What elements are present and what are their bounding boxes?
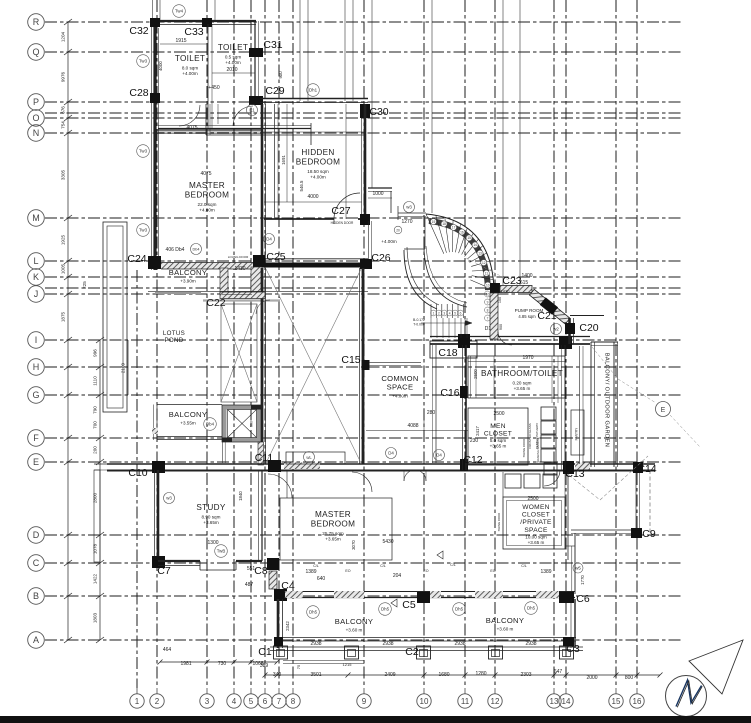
svg-text:20: 20 — [396, 229, 400, 233]
svg-text:K: K — [33, 272, 39, 282]
svg-text:4088: 4088 — [407, 423, 418, 429]
svg-text:13: 13 — [550, 697, 559, 706]
svg-text:C: C — [33, 558, 40, 568]
svg-text:/PRIVATE: /PRIVATE — [520, 519, 552, 526]
svg-text:M: M — [32, 213, 40, 223]
svg-text:PUMP ROOM: PUMP ROOM — [515, 308, 544, 313]
svg-text:2800: 2800 — [93, 492, 98, 503]
svg-text:Dh1: Dh1 — [309, 88, 318, 93]
svg-text:Tw3: Tw3 — [139, 149, 148, 154]
svg-text:+3.55m: +3.55m — [180, 421, 196, 426]
svg-text:C15: C15 — [341, 354, 360, 366]
svg-text:B: B — [33, 591, 39, 601]
svg-text:C13: C13 — [565, 468, 584, 480]
svg-text:EO: EO — [423, 569, 428, 573]
svg-text:1: 1 — [135, 697, 140, 706]
svg-text:PANTRY: PANTRY — [575, 427, 579, 441]
svg-text:1400: 1400 — [521, 273, 532, 279]
svg-text:HIDDEN: HIDDEN — [301, 148, 334, 157]
svg-text:1389: 1389 — [540, 569, 551, 575]
svg-text:1005: 1005 — [61, 263, 66, 274]
svg-text:1270: 1270 — [401, 219, 412, 225]
svg-text:N: N — [33, 128, 40, 138]
svg-text:1691: 1691 — [281, 155, 286, 165]
svg-text:17: 17 — [452, 226, 456, 230]
svg-text:C28: C28 — [129, 87, 148, 99]
svg-text:C9: C9 — [642, 528, 656, 540]
svg-text:C5: C5 — [402, 599, 416, 611]
svg-text:640: 640 — [317, 576, 326, 582]
svg-text:0.20 sqm: 0.20 sqm — [513, 380, 532, 385]
svg-text:+4.00m: +4.00m — [199, 207, 215, 212]
svg-text:T-0.000: T-0.000 — [413, 323, 425, 327]
svg-text:4000: 4000 — [307, 194, 318, 200]
svg-text:7: 7 — [277, 697, 282, 706]
svg-text:CLOSET: CLOSET — [522, 512, 550, 519]
svg-text:+3.65m: +3.65m — [325, 536, 341, 541]
svg-text:MEN: MEN — [490, 423, 506, 430]
svg-text:+3.60 m: +3.60 m — [346, 628, 363, 633]
svg-text:BALCONY: BALCONY — [335, 617, 373, 626]
svg-text:BALCONY: BALCONY — [169, 410, 207, 419]
svg-text:WOMEN: WOMEN — [522, 504, 550, 511]
svg-text:10: 10 — [420, 697, 429, 706]
svg-text:BEDROOM: BEDROOM — [185, 190, 229, 199]
svg-text:1280: 1280 — [475, 671, 486, 677]
svg-text:13: 13 — [478, 251, 482, 255]
svg-text:1000: 1000 — [372, 191, 383, 197]
svg-text:8: 8 — [291, 697, 296, 706]
svg-text:E: E — [33, 457, 39, 467]
svg-text:406 Db4: 406 Db4 — [166, 247, 185, 253]
svg-text:BEDROOM: BEDROOM — [296, 157, 340, 166]
svg-text:10.00 sqm: 10.00 sqm — [525, 534, 547, 539]
svg-text:BATHROOM/TOILET: BATHROOM/TOILET — [481, 369, 563, 378]
svg-text:STUDY: STUDY — [196, 503, 225, 512]
svg-text:6: 6 — [460, 311, 462, 315]
svg-text:C32: C32 — [129, 25, 148, 37]
svg-text:B-0.172: B-0.172 — [413, 318, 425, 322]
svg-text:C14: C14 — [637, 463, 656, 475]
svg-text:9976: 9976 — [61, 71, 66, 82]
svg-text:C25: C25 — [266, 251, 285, 263]
svg-text:LOUNG DOOR: LOUNG DOOR — [228, 255, 249, 259]
svg-text:D4: D4 — [436, 453, 442, 458]
svg-text:C31: C31 — [263, 39, 282, 51]
svg-text:615: 615 — [520, 280, 529, 286]
svg-text:SWING DOOR: SWING DOOR — [522, 439, 526, 458]
svg-text:Tw3: Tw3 — [139, 59, 148, 64]
svg-text:2500: 2500 — [493, 411, 504, 417]
svg-text:C/L: C/L — [521, 564, 527, 568]
svg-text:+3.65 m: +3.65 m — [514, 386, 531, 391]
svg-text:900: 900 — [250, 421, 254, 427]
svg-text:C33: C33 — [184, 26, 203, 38]
svg-text:E1: E1 — [249, 108, 255, 113]
svg-text:SWING DOOR: SWING DOOR — [497, 513, 501, 532]
svg-text:BALCONY/ OUTDOOR GARDEN: BALCONY/ OUTDOOR GARDEN — [604, 353, 610, 448]
svg-text:C16: C16 — [440, 387, 459, 399]
svg-text:5: 5 — [249, 697, 254, 706]
svg-text:5: 5 — [454, 311, 456, 315]
svg-text:EO: EO — [345, 569, 350, 573]
svg-text:18: 18 — [442, 222, 446, 226]
svg-text:I: I — [35, 335, 38, 345]
svg-text:H: H — [33, 362, 40, 372]
svg-text:1204: 1204 — [61, 31, 66, 42]
svg-text:C22: C22 — [206, 297, 225, 309]
svg-text:Db4: Db4 — [206, 422, 215, 427]
svg-text:790: 790 — [93, 406, 98, 414]
svg-text:C/L: C/L — [313, 564, 319, 568]
svg-text:BEDROOM: BEDROOM — [311, 519, 355, 528]
svg-text:4075: 4075 — [200, 171, 211, 177]
svg-text:551: 551 — [247, 566, 256, 572]
svg-text:3070: 3070 — [351, 540, 356, 550]
svg-text:200: 200 — [93, 446, 98, 454]
svg-text:+3.90m: +3.90m — [180, 279, 196, 284]
svg-text:TOILET: TOILET — [218, 43, 248, 52]
svg-text:1875: 1875 — [61, 311, 66, 322]
svg-text:15: 15 — [612, 697, 621, 706]
svg-text:4.85 sqm: 4.85 sqm — [518, 314, 536, 319]
svg-text:R: R — [33, 17, 40, 27]
svg-text:1970: 1970 — [522, 355, 533, 361]
svg-text:1422: 1422 — [93, 573, 98, 584]
svg-text:1389: 1389 — [305, 569, 316, 575]
svg-text:464: 464 — [163, 647, 172, 653]
svg-text:D: D — [33, 530, 40, 540]
svg-text:w5: w5 — [575, 566, 581, 571]
svg-text:4: 4 — [449, 311, 451, 315]
svg-text:Dh5: Dh5 — [381, 607, 390, 612]
svg-text:+4.00m: +4.00m — [310, 174, 326, 179]
svg-text:+4.00m: +4.00m — [392, 393, 408, 398]
svg-text:546.5: 546.5 — [299, 180, 304, 192]
svg-text:2342: 2342 — [285, 621, 290, 631]
svg-text:C26: C26 — [371, 252, 390, 264]
svg-text:2417: 2417 — [475, 426, 480, 436]
svg-text:C10: C10 — [128, 467, 147, 479]
svg-text:+3.65m: +3.65m — [203, 520, 219, 525]
svg-text:J: J — [34, 289, 39, 299]
svg-text:14: 14 — [562, 697, 571, 706]
svg-text:19: 19 — [432, 220, 436, 224]
svg-text:Tw3: Tw3 — [139, 228, 148, 233]
svg-text:18.50 sqm: 18.50 sqm — [307, 169, 329, 174]
svg-text:1215: 1215 — [343, 662, 353, 667]
svg-text:1803: 1803 — [93, 612, 98, 623]
svg-text:8: 8 — [487, 308, 489, 312]
svg-text:C30: C30 — [369, 106, 388, 118]
svg-text:3: 3 — [205, 697, 210, 706]
svg-text:11: 11 — [461, 697, 470, 706]
svg-text:C1: C1 — [258, 646, 272, 658]
svg-text:F: F — [33, 433, 39, 443]
svg-text:Dh5: Dh5 — [455, 607, 464, 612]
svg-text:BALCONY: BALCONY — [486, 616, 524, 625]
svg-text:E: E — [661, 407, 666, 414]
svg-text:2938: 2938 — [454, 641, 465, 647]
svg-text:2938: 2938 — [310, 641, 321, 647]
svg-text:1430: 1430 — [234, 266, 245, 272]
svg-text:C/L: C/L — [380, 564, 386, 568]
svg-text:700: 700 — [93, 421, 98, 429]
svg-text:BALCONY: BALCONY — [169, 268, 207, 277]
svg-text:+3.60 m: +3.60 m — [497, 627, 514, 632]
svg-text:15: 15 — [467, 236, 471, 240]
svg-text:4000: 4000 — [158, 61, 163, 71]
svg-text:Q: Q — [32, 47, 39, 57]
svg-text:800: 800 — [625, 675, 634, 681]
svg-text:204: 204 — [393, 573, 402, 579]
svg-text:6: 6 — [263, 697, 268, 706]
svg-text:676: 676 — [61, 106, 66, 114]
svg-text:P: P — [33, 97, 39, 107]
svg-text:C8: C8 — [254, 565, 268, 577]
svg-text:1: 1 — [433, 311, 435, 315]
svg-text:280: 280 — [427, 410, 436, 416]
svg-text:Tw4: Tw4 — [175, 9, 184, 14]
svg-text:2938: 2938 — [525, 641, 536, 647]
svg-text:w3: w3 — [166, 496, 172, 501]
svg-text:C/L: C/L — [450, 563, 456, 567]
svg-text:L: L — [33, 256, 38, 266]
svg-text:C7: C7 — [157, 565, 171, 577]
svg-text:CLOSET: CLOSET — [484, 431, 512, 438]
svg-text:EO: EO — [490, 569, 495, 573]
svg-text:Dh5: Dh5 — [309, 610, 318, 615]
svg-text:TOILET: TOILET — [175, 54, 205, 63]
svg-text:+450: +450 — [208, 85, 219, 91]
svg-text:2000: 2000 — [586, 675, 597, 681]
svg-text:1078: 1078 — [93, 543, 98, 554]
svg-text:2500: 2500 — [473, 369, 478, 379]
svg-text:MASTER: MASTER — [315, 510, 351, 519]
svg-text:4075: 4075 — [186, 125, 197, 131]
svg-text:5430: 5430 — [382, 539, 393, 545]
svg-text:w2: w2 — [553, 327, 559, 332]
svg-text:+3.65 m: +3.65 m — [490, 444, 507, 449]
svg-text:12: 12 — [482, 261, 486, 265]
svg-text:LOTUS: LOTUS — [163, 330, 185, 337]
svg-text:O: O — [32, 113, 39, 123]
svg-text:C24: C24 — [127, 253, 146, 265]
svg-text:900: 900 — [278, 71, 283, 79]
svg-text:754: 754 — [61, 121, 66, 129]
svg-text:1915: 1915 — [175, 38, 186, 44]
svg-text:14: 14 — [473, 243, 477, 247]
svg-text:2: 2 — [438, 311, 440, 315]
svg-text:2: 2 — [155, 697, 160, 706]
svg-text:wL: wL — [306, 455, 312, 460]
svg-text:996: 996 — [93, 349, 98, 357]
svg-text:225: 225 — [82, 281, 87, 289]
svg-text:1840: 1840 — [238, 491, 243, 501]
svg-text:C12: C12 — [463, 454, 482, 466]
svg-text:2010: 2010 — [226, 67, 237, 73]
svg-text:1300: 1300 — [207, 540, 218, 546]
svg-text:100: 100 — [498, 297, 502, 303]
svg-text:16: 16 — [460, 230, 464, 234]
svg-text:1430: 1430 — [501, 289, 511, 294]
svg-text:+3.65 m: +3.65 m — [528, 540, 545, 545]
svg-text:C11: C11 — [255, 452, 274, 464]
svg-text:D4: D4 — [266, 237, 272, 242]
svg-text:FROSTED GLASS: FROSTED GLASS — [528, 423, 532, 448]
svg-text:7: 7 — [487, 316, 489, 320]
svg-text:8.90 sqm: 8.90 sqm — [202, 514, 221, 519]
svg-text:5.0 sqm: 5.0 sqm — [490, 438, 507, 443]
svg-text:D4: D4 — [388, 451, 394, 456]
svg-text:Dh5: Dh5 — [527, 606, 536, 611]
svg-text:22.0 sqm: 22.0 sqm — [198, 202, 217, 207]
svg-text:4: 4 — [232, 697, 237, 706]
svg-text:C20: C20 — [579, 322, 598, 334]
svg-text:HIDDEN DOOR: HIDDEN DOOR — [331, 221, 354, 225]
svg-text:C3: C3 — [566, 643, 580, 655]
svg-text:C29: C29 — [265, 85, 284, 97]
svg-text:0.5 sqm: 0.5 sqm — [225, 54, 242, 59]
svg-text:POND: POND — [164, 337, 183, 344]
svg-text:+4.00m: +4.00m — [182, 71, 198, 76]
svg-text:SPACE: SPACE — [524, 527, 548, 534]
svg-text:+4.00m: +4.00m — [225, 60, 241, 65]
svg-text:75: 75 — [296, 664, 301, 669]
svg-text:12: 12 — [491, 697, 500, 706]
svg-text:w3: w3 — [406, 205, 412, 210]
svg-text:C27: C27 — [331, 205, 350, 217]
svg-text:A: A — [33, 635, 39, 645]
svg-text:2938: 2938 — [382, 641, 393, 647]
svg-text:9: 9 — [487, 300, 489, 304]
svg-text:1770: 1770 — [580, 575, 585, 585]
svg-text:1110: 1110 — [93, 376, 98, 386]
svg-text:8.0 sqm: 8.0 sqm — [182, 65, 199, 70]
svg-text:COMMON: COMMON — [381, 374, 418, 383]
svg-text:10: 10 — [486, 283, 490, 287]
svg-text:+4.00m: +4.00m — [381, 239, 397, 244]
svg-text:C18: C18 — [438, 347, 457, 359]
svg-text:3305: 3305 — [61, 169, 66, 180]
svg-text:2500: 2500 — [527, 496, 538, 502]
svg-text:487: 487 — [245, 582, 254, 588]
svg-text:G: G — [32, 390, 39, 400]
svg-text:C2: C2 — [405, 646, 419, 658]
svg-text:11: 11 — [485, 272, 489, 276]
svg-text:3: 3 — [443, 311, 445, 315]
svg-text:MASTER: MASTER — [189, 181, 225, 190]
svg-text:389: 389 — [260, 663, 269, 669]
svg-text:1925: 1925 — [61, 234, 66, 245]
svg-text:900: 900 — [499, 324, 503, 330]
svg-text:PEBBLE PATHWAY: PEBBLE PATHWAY — [535, 423, 539, 450]
svg-text:TwB: TwB — [217, 549, 226, 554]
svg-text:10: 10 — [486, 292, 490, 296]
svg-text:C4: C4 — [281, 580, 295, 592]
svg-text:25.75 sqm: 25.75 sqm — [322, 531, 344, 536]
svg-text:Db4: Db4 — [193, 248, 200, 252]
svg-text:SPACE: SPACE — [387, 383, 414, 392]
svg-text:230: 230 — [470, 438, 479, 444]
svg-text:16: 16 — [633, 697, 642, 706]
svg-text:9: 9 — [362, 697, 367, 706]
svg-text:C6: C6 — [576, 593, 590, 605]
svg-text:D1: D1 — [485, 326, 492, 332]
